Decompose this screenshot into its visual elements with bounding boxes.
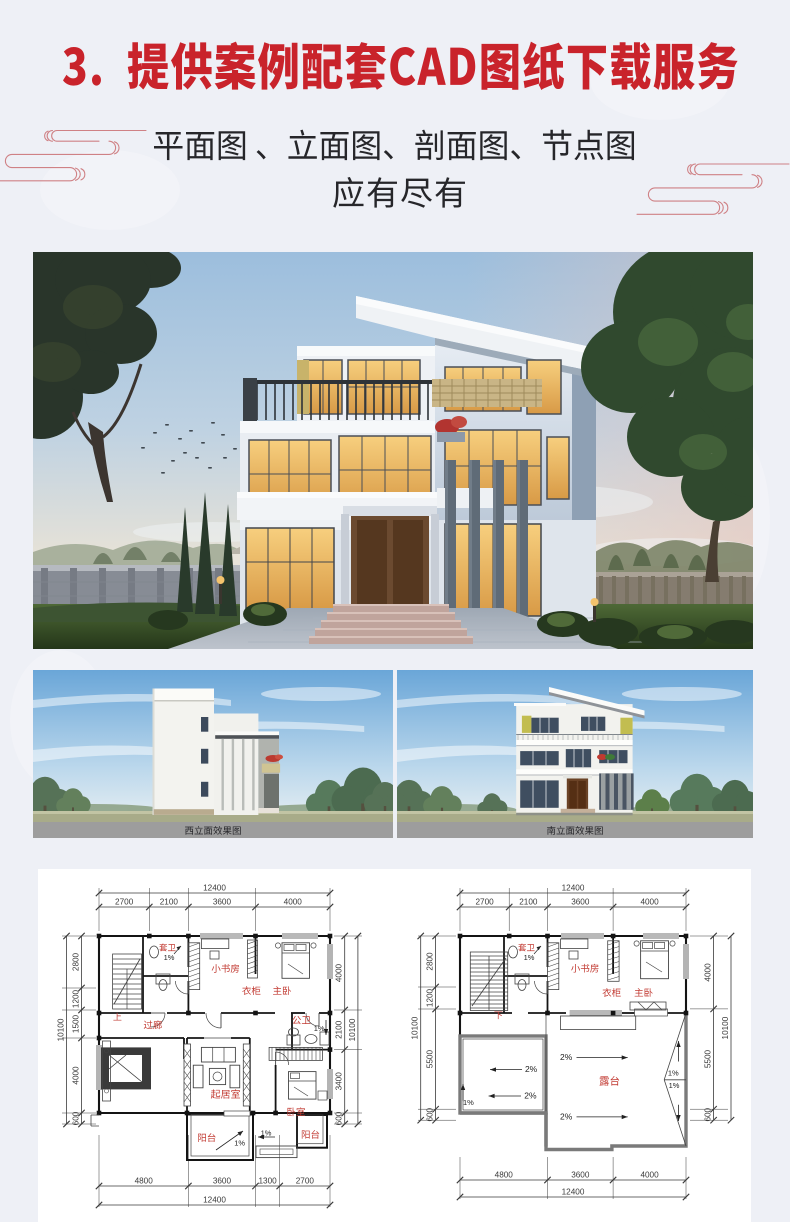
svg-text:5500: 5500 xyxy=(704,1049,713,1068)
svg-text:1%: 1% xyxy=(234,1139,245,1148)
svg-text:600: 600 xyxy=(335,1111,344,1125)
svg-text:2700: 2700 xyxy=(115,898,134,907)
svg-text:2%: 2% xyxy=(525,1064,538,1074)
svg-text:2800: 2800 xyxy=(72,952,81,971)
svg-text:10100: 10100 xyxy=(721,1016,730,1039)
svg-text:2%: 2% xyxy=(560,1111,573,1121)
svg-text:3600: 3600 xyxy=(571,898,590,907)
svg-text:5500: 5500 xyxy=(426,1050,435,1069)
svg-text:2800: 2800 xyxy=(426,952,435,971)
svg-text:10100: 10100 xyxy=(348,1018,357,1041)
svg-text:3600: 3600 xyxy=(571,1171,590,1180)
svg-text:3400: 3400 xyxy=(335,1072,344,1091)
svg-text:2100: 2100 xyxy=(160,898,179,907)
svg-text:4000: 4000 xyxy=(640,1171,659,1180)
svg-text:12400: 12400 xyxy=(203,1196,226,1205)
svg-text:600: 600 xyxy=(426,1107,435,1121)
svg-text:10100: 10100 xyxy=(411,1016,420,1039)
svg-text:3600: 3600 xyxy=(213,898,232,907)
svg-text:4000: 4000 xyxy=(640,898,659,907)
svg-text:1%: 1% xyxy=(314,1024,325,1033)
svg-text:4000: 4000 xyxy=(284,898,303,907)
svg-text:600: 600 xyxy=(704,1107,713,1121)
svg-text:2100: 2100 xyxy=(335,1020,344,1039)
svg-text:4800: 4800 xyxy=(135,1177,154,1186)
svg-text:2700: 2700 xyxy=(296,1177,315,1186)
svg-text:2100: 2100 xyxy=(519,898,538,907)
svg-text:10100: 10100 xyxy=(57,1018,66,1041)
svg-text:1%: 1% xyxy=(524,953,535,962)
svg-text:2%: 2% xyxy=(524,1090,537,1100)
svg-text:2700: 2700 xyxy=(475,898,494,907)
svg-text:4000: 4000 xyxy=(704,963,713,982)
svg-text:4000: 4000 xyxy=(335,963,344,982)
svg-text:4000: 4000 xyxy=(72,1066,81,1085)
svg-text:2%: 2% xyxy=(560,1052,573,1062)
svg-text:1500: 1500 xyxy=(72,1014,81,1033)
svg-text:1%: 1% xyxy=(164,953,175,962)
svg-text:4800: 4800 xyxy=(495,1171,514,1180)
svg-text:600: 600 xyxy=(72,1111,81,1125)
svg-text:1200: 1200 xyxy=(426,988,435,1007)
svg-text:1%: 1% xyxy=(668,1069,679,1078)
svg-text:1300: 1300 xyxy=(258,1177,277,1186)
svg-text:3600: 3600 xyxy=(213,1177,232,1186)
svg-text:1%: 1% xyxy=(463,1098,474,1107)
svg-text:1200: 1200 xyxy=(72,989,81,1008)
svg-text:12400: 12400 xyxy=(562,1188,585,1197)
svg-text:12400: 12400 xyxy=(203,884,226,893)
svg-text:1%: 1% xyxy=(669,1081,680,1090)
svg-text:12400: 12400 xyxy=(562,884,585,893)
